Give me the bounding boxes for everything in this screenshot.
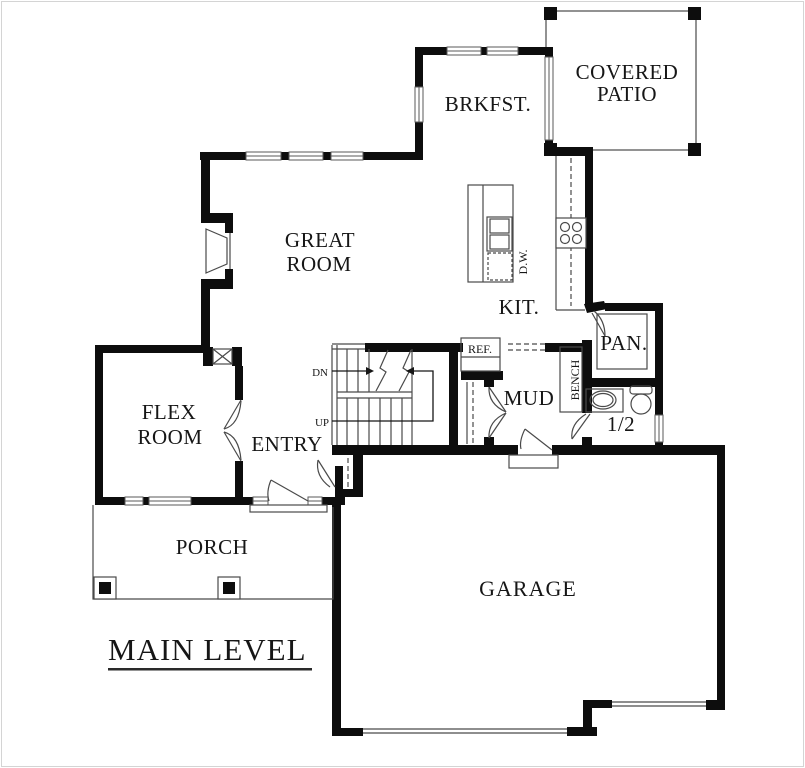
flex-room-label2: ROOM (137, 425, 202, 449)
covered-patio-label2: PATIO (597, 82, 657, 106)
windows (125, 47, 663, 505)
patio-slider-window (545, 57, 553, 140)
window (149, 497, 191, 505)
floor-plan-drawing: COVERED PATIO BRKFST. GREAT ROOM KIT. PA… (0, 0, 805, 768)
refrigerator-label: REF. (468, 342, 492, 356)
stairs-down-label: DN (312, 367, 328, 379)
pantry-label: PAN. (600, 331, 647, 355)
sidelite-window (308, 497, 322, 505)
window (415, 87, 423, 122)
kitchen-sink (487, 217, 512, 251)
column-box (213, 349, 232, 364)
plan-title: MAIN LEVEL (108, 632, 307, 667)
garage-step (509, 455, 558, 468)
stairs-up-label: UP (315, 417, 329, 429)
porch-label: PORCH (176, 535, 249, 559)
staircase (332, 344, 433, 445)
plan-title-group: MAIN LEVEL (108, 632, 312, 671)
kitchen-island (468, 185, 513, 282)
window (246, 152, 281, 160)
cooktop (556, 218, 586, 248)
window (125, 497, 143, 505)
front-door-threshold (250, 505, 327, 512)
toilet (630, 386, 652, 414)
bench-label: BENCH (568, 359, 582, 400)
window (289, 152, 323, 160)
title-underline (108, 668, 312, 671)
dishwasher-outline (488, 253, 512, 280)
bath-door (572, 414, 590, 439)
closet-door (318, 460, 336, 487)
fireplace (201, 213, 233, 289)
flex-room-label: FLEX (142, 400, 197, 424)
flex-room-double-door (224, 400, 241, 461)
stairs-down-arrow (332, 367, 374, 375)
window (655, 415, 663, 442)
floor-plan: COVERED PATIO BRKFST. GREAT ROOM KIT. PA… (0, 0, 805, 768)
half-bath-label: 1/2 (607, 412, 635, 436)
cased-openings (348, 344, 545, 489)
covered-patio-label: COVERED (576, 60, 679, 84)
entry-label: ENTRY (251, 432, 322, 456)
dishwasher-label: D.W. (516, 250, 530, 275)
garage-label: GARAGE (479, 576, 577, 601)
front-door (268, 480, 308, 501)
patio-post (688, 7, 701, 20)
kitchen-label: KIT. (499, 295, 540, 319)
window (447, 47, 481, 55)
kitchen-counter (556, 156, 586, 310)
great-room-label: GREAT (285, 228, 355, 252)
mud-room-label: MUD (504, 386, 555, 410)
great-room-label2: ROOM (286, 252, 351, 276)
patio-post (688, 143, 701, 156)
garage-doors (363, 702, 706, 733)
sidelite-window (253, 497, 268, 505)
stair-break-line (376, 350, 388, 391)
breakfast-label: BRKFST. (445, 92, 532, 116)
patio-post (544, 7, 557, 20)
window (331, 152, 363, 160)
window (487, 47, 518, 55)
